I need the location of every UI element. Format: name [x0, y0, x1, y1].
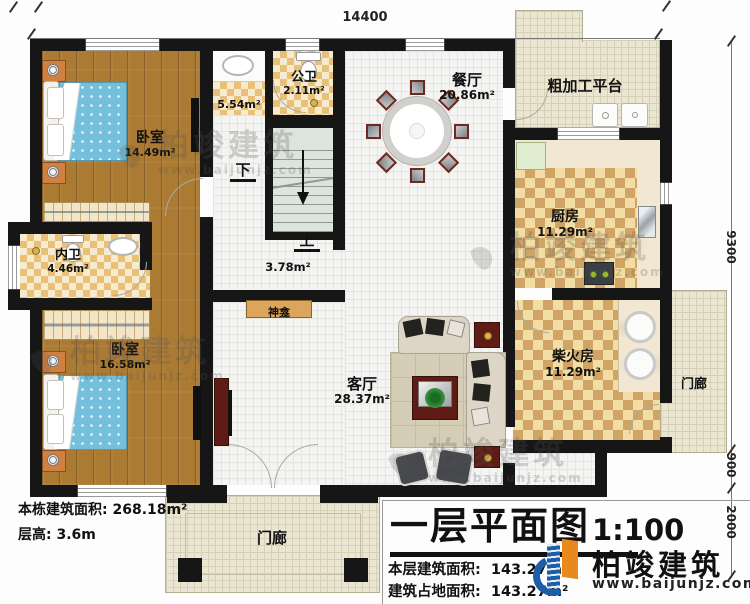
- wall: [445, 39, 515, 51]
- dining-table-center: [409, 123, 425, 139]
- sofa-cushion: [425, 318, 445, 336]
- wall: [552, 288, 672, 300]
- dim-tick: [34, 1, 43, 13]
- wall: [8, 222, 152, 234]
- nightstand: [42, 450, 66, 472]
- floor-drain: [32, 247, 40, 255]
- wall: [333, 51, 345, 250]
- wall: [503, 51, 515, 88]
- sofa-cushion: [471, 359, 490, 378]
- fridge: [516, 142, 546, 170]
- window: [285, 39, 320, 51]
- title-block-border-v: [382, 500, 383, 604]
- tv: [228, 390, 232, 436]
- wall: [8, 222, 20, 245]
- nightstand: [42, 60, 66, 82]
- tv: [193, 386, 201, 440]
- note-floor-height: 层高: 3.6m: [18, 528, 96, 544]
- brand-logo-icon: [533, 538, 585, 600]
- porch-column: [344, 558, 368, 582]
- wall: [200, 217, 213, 485]
- dim-right-2000: 2000: [724, 492, 738, 552]
- sink: [222, 55, 254, 76]
- wardrobe: [43, 202, 150, 222]
- pillow: [47, 380, 64, 410]
- wall: [8, 290, 20, 310]
- tv-cabinet: [214, 378, 229, 446]
- logo-building-orange: [562, 539, 578, 579]
- stair-arrow-head: [297, 192, 309, 205]
- dining-chair: [454, 124, 469, 139]
- wall: [8, 298, 152, 310]
- dim-right-900: 900: [724, 435, 738, 495]
- wall: [503, 128, 557, 140]
- dining-table-group: [379, 93, 455, 169]
- platform-sink: [621, 103, 648, 127]
- dim-tick: [662, 0, 671, 12]
- dining-chair: [366, 124, 381, 139]
- wall: [30, 39, 42, 222]
- porch-column: [178, 558, 202, 582]
- stairs-down-label: 下: [230, 162, 256, 182]
- window: [557, 128, 620, 140]
- pillow: [47, 414, 64, 444]
- pillow: [47, 87, 64, 119]
- wall: [30, 485, 77, 497]
- lamp-icon: [47, 166, 59, 178]
- shrine-box: 神龛: [246, 300, 312, 318]
- bedroom2-label: 卧室 16.58m²: [85, 343, 165, 371]
- window: [77, 485, 167, 497]
- burner: [590, 271, 597, 278]
- burner: [602, 271, 609, 278]
- vanity-label: 5.54m²: [212, 99, 266, 111]
- plant: [425, 388, 445, 408]
- shrine-label: 神龛: [268, 306, 290, 319]
- firewood-label: 柴火房 11.29m²: [528, 350, 618, 379]
- sofa-cushion: [472, 383, 491, 402]
- lamp-icon: [47, 454, 59, 466]
- window: [660, 182, 672, 205]
- platform-label: 粗加工平台: [525, 78, 645, 95]
- floor-plan: 神龛 卧室 14.49m² 5.54m² 公卫 2.11m² 餐厅 20.86m…: [0, 0, 750, 604]
- sofa-cushion: [471, 407, 491, 427]
- dining-label: 餐厅 20.86m²: [432, 72, 502, 102]
- cabinet-knob: [484, 332, 492, 340]
- side-cabinet: [474, 322, 500, 348]
- kitchen-label: 厨房 11.29m²: [530, 210, 600, 239]
- toilet-tank: [62, 235, 84, 243]
- entry-pier: [167, 485, 227, 503]
- dim-line-top: [30, 38, 660, 39]
- wall: [660, 205, 672, 403]
- window: [85, 39, 160, 51]
- wall: [620, 128, 672, 140]
- wall: [160, 39, 285, 51]
- sink: [108, 237, 138, 256]
- public-wc-label: 公卫 2.11m²: [278, 71, 330, 97]
- cabinet-knob: [484, 454, 492, 462]
- lamp-icon: [47, 64, 59, 76]
- stairs-up-label: 上: [294, 232, 320, 252]
- wall: [660, 40, 672, 182]
- living-floor-nook: [503, 453, 595, 485]
- door-knob: [310, 99, 318, 107]
- dining-chair: [410, 80, 425, 95]
- window: [8, 245, 20, 290]
- lamp-icon: [47, 355, 59, 367]
- wood-stove: [624, 348, 656, 380]
- title-block-border-h: [382, 500, 750, 501]
- platform-sink: [592, 103, 618, 127]
- porch-bottom-label: 门廊: [242, 530, 302, 547]
- kitchen-sink: [638, 206, 656, 238]
- wall: [320, 39, 405, 51]
- drain: [632, 112, 638, 118]
- brand-website: www.baijunjz.com: [592, 576, 750, 592]
- bedroom1-label: 卧室 14.49m²: [95, 131, 205, 159]
- stove: [584, 262, 614, 285]
- stair-arrow-shaft: [302, 150, 304, 192]
- wall: [30, 310, 42, 485]
- toilet-tank: [296, 52, 321, 61]
- armchair: [433, 447, 474, 487]
- window: [405, 39, 445, 51]
- logo-building-blue: [547, 543, 560, 588]
- dining-chair: [410, 168, 425, 183]
- wall: [503, 463, 515, 485]
- wood-stove: [624, 311, 656, 343]
- inner-wc-label: 内卫 4.46m²: [40, 249, 96, 275]
- living-label: 客厅 28.37m²: [322, 376, 402, 406]
- wall: [513, 440, 672, 453]
- nightstand: [42, 351, 66, 373]
- nightstand: [42, 162, 66, 184]
- wall: [265, 128, 273, 232]
- dim-tick: [9, 1, 18, 13]
- entry-pier: [320, 485, 378, 503]
- side-cabinet: [474, 446, 500, 468]
- drain: [602, 112, 609, 119]
- porch-right-label: 门廊: [670, 378, 718, 393]
- wardrobe: [43, 310, 150, 340]
- note-total-area: 本栋建筑面积: 268.18m²: [18, 503, 187, 519]
- pillow: [47, 124, 64, 156]
- dim-right-9300: 9300: [724, 217, 738, 277]
- hall-area-label: 3.78m²: [258, 261, 318, 274]
- wall: [378, 485, 607, 497]
- dim-top-value: 14400: [332, 10, 398, 25]
